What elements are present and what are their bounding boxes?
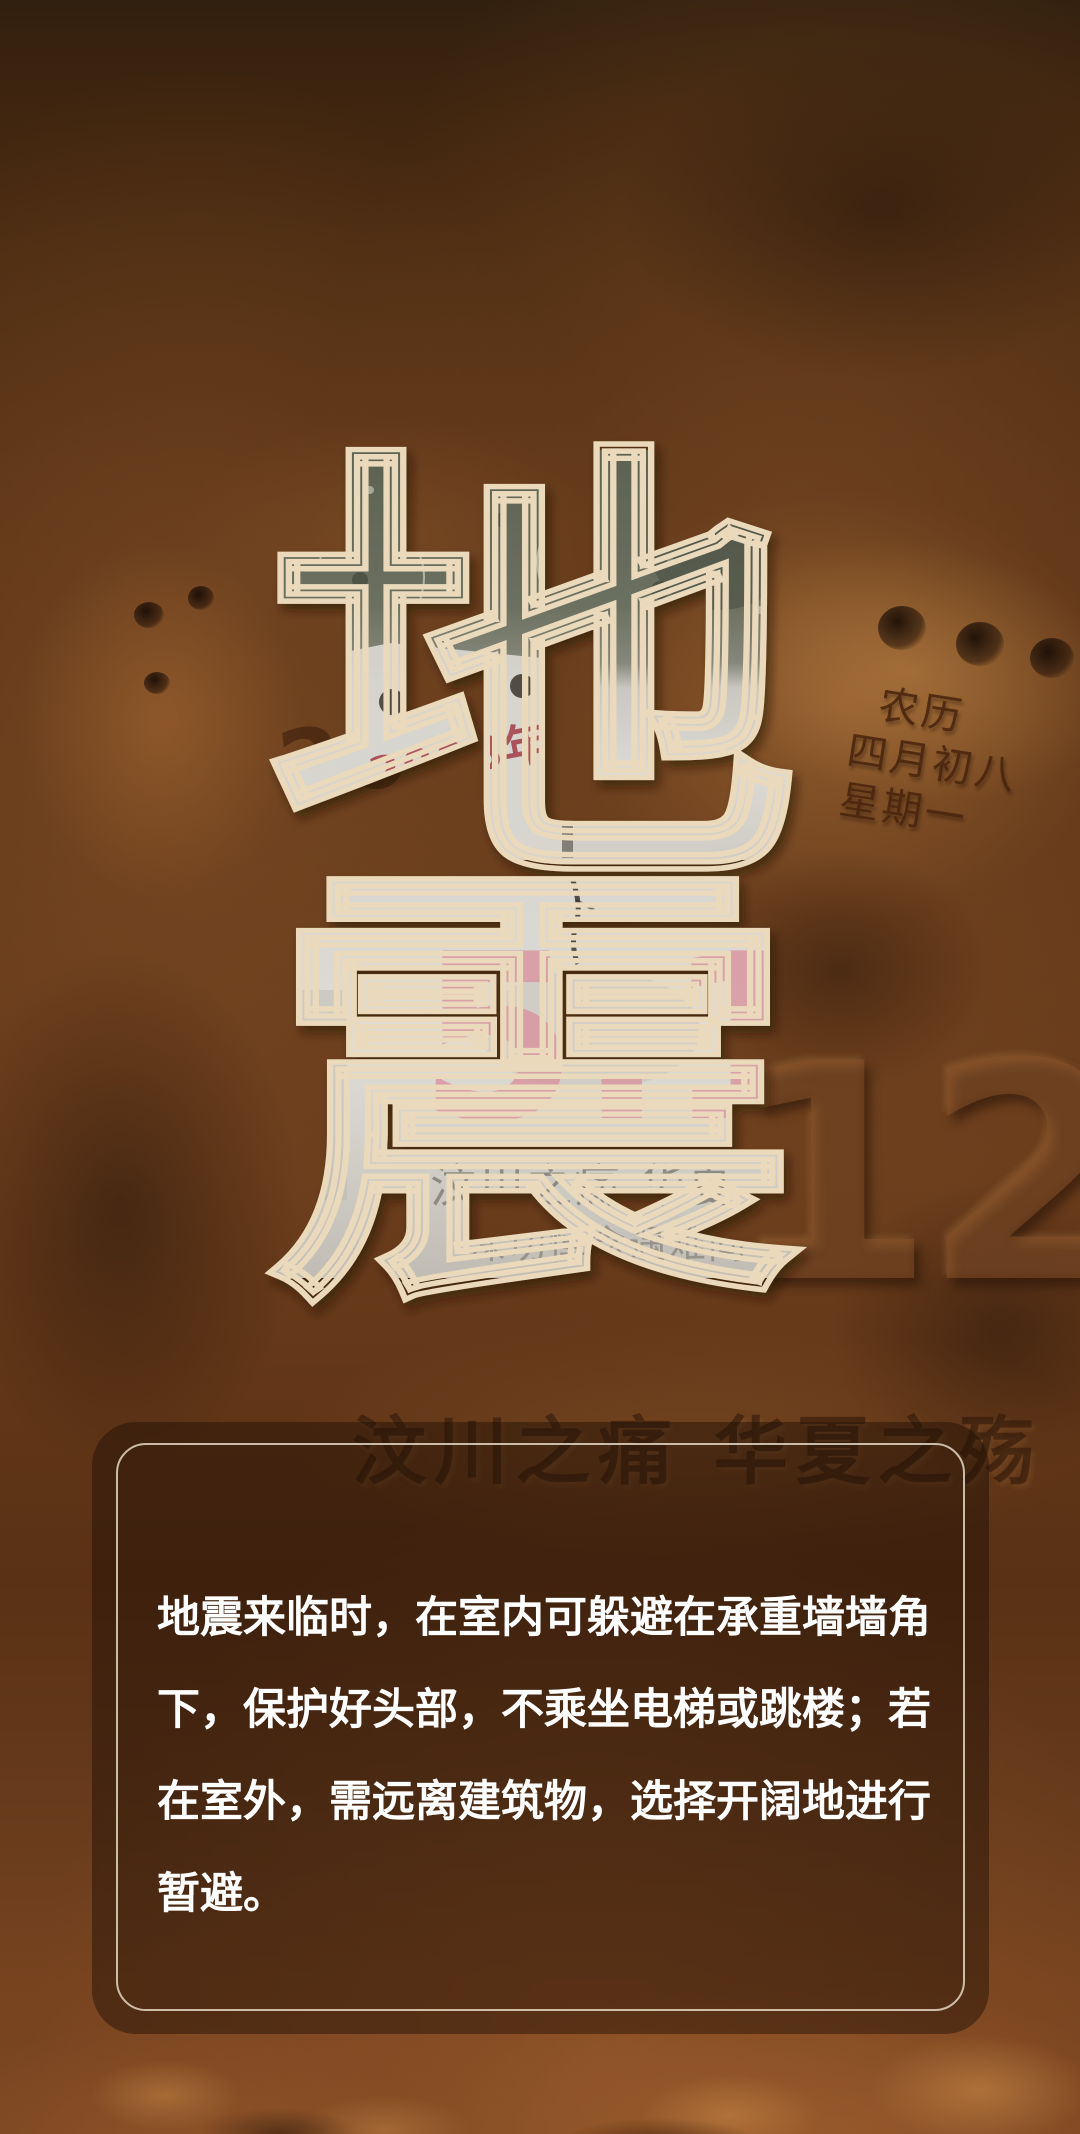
- char-zhen-outline: 震: [266, 828, 807, 1361]
- calendar-stone-hole: [1030, 638, 1074, 678]
- safety-instructions-text: 地震来临时，在室内可躲避在承重墙墙角下，保护好头部，不乘坐电梯或跳楼；若在室外，…: [157, 1572, 935, 1940]
- rubble-rock: [640, 2075, 820, 2134]
- rubble-shadow: [200, 2108, 360, 2134]
- char-outlines: 地 震: [266, 411, 807, 1362]
- bottom-rubble-light-left: [0, 2020, 420, 2134]
- lunar-calendar-text: 农历 四月初八 星期一: [836, 676, 1080, 862]
- calendar-stone-hole: [956, 622, 1004, 666]
- rubble-rock: [300, 2095, 470, 2134]
- rubble-rock: [870, 2035, 1080, 2134]
- earthquake-title-art: 地 震: [240, 430, 820, 1290]
- rubble-rock: [90, 2060, 240, 2130]
- calendar-stone-hole: [878, 606, 926, 650]
- left-rock-hole: [144, 672, 170, 694]
- rubble-shadow: [560, 2118, 760, 2134]
- left-rock-hole: [188, 586, 214, 610]
- earthquake-poster: 20 农历 四月初八 星期一 12 汶川之痛 华夏之殇: [0, 0, 1080, 2134]
- left-rock-hole: [134, 602, 164, 628]
- dark-shadow-top-right: [620, 40, 1080, 380]
